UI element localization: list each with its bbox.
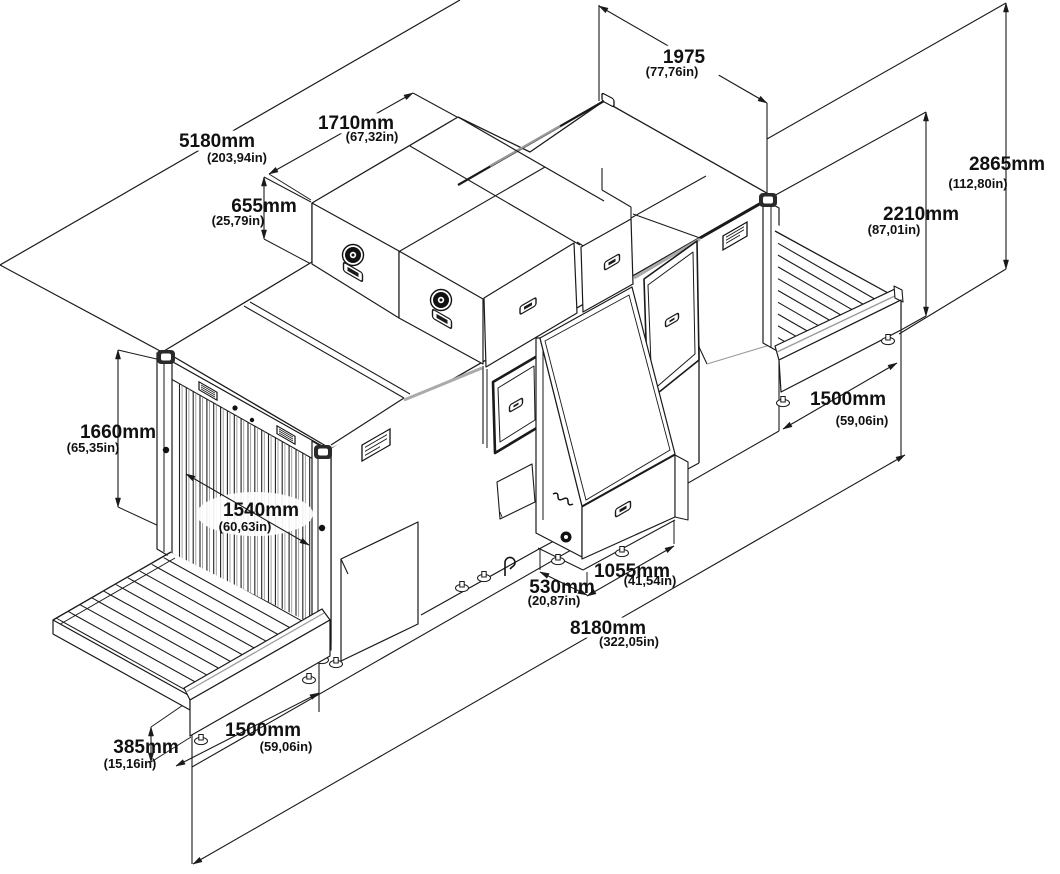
svg-text:(20,87in): (20,87in) bbox=[528, 593, 581, 608]
svg-text:(87,01in): (87,01in) bbox=[868, 222, 921, 237]
svg-text:(25,79in): (25,79in) bbox=[212, 213, 265, 228]
svg-text:(59,06in): (59,06in) bbox=[260, 739, 313, 754]
svg-text:(112,80in): (112,80in) bbox=[948, 176, 1007, 191]
svg-text:385mm: 385mm bbox=[113, 737, 179, 758]
svg-text:(60,63in): (60,63in) bbox=[219, 519, 272, 534]
svg-text:2865mm: 2865mm bbox=[969, 154, 1045, 175]
svg-text:(59,06in): (59,06in) bbox=[836, 413, 889, 428]
svg-text:(322,05in): (322,05in) bbox=[599, 634, 659, 649]
svg-text:(41,54in): (41,54in) bbox=[624, 573, 677, 588]
svg-text:(203,94in): (203,94in) bbox=[207, 150, 267, 165]
svg-text:(67,32in): (67,32in) bbox=[346, 129, 399, 144]
svg-text:(65,35in): (65,35in) bbox=[67, 440, 120, 455]
svg-text:5180mm: 5180mm bbox=[179, 131, 255, 152]
svg-text:1500mm: 1500mm bbox=[225, 720, 301, 741]
svg-text:(77,76in): (77,76in) bbox=[646, 64, 699, 79]
svg-text:1500mm: 1500mm bbox=[810, 389, 886, 410]
svg-text:1540mm: 1540mm bbox=[223, 500, 299, 521]
svg-text:(15,16in): (15,16in) bbox=[104, 756, 157, 771]
